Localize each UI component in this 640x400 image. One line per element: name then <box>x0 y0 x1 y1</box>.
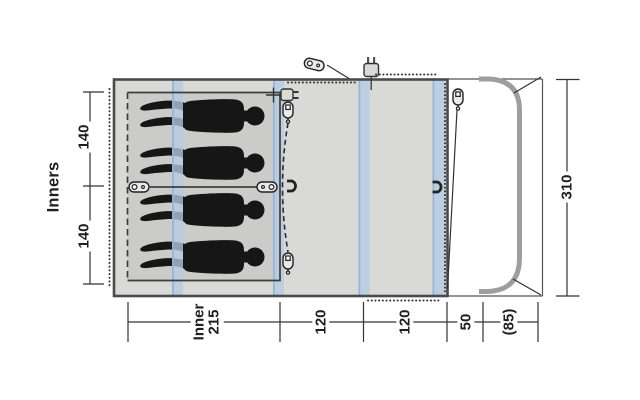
zipper-pull-icon <box>129 182 149 192</box>
roof-pole <box>433 80 446 296</box>
zipper-cord <box>327 65 349 79</box>
dim-label-living-left: 120 <box>312 306 329 337</box>
front-door-zipper-top <box>303 57 349 78</box>
roof-pole-edge <box>359 80 361 296</box>
inners-title-label: Inners <box>45 159 64 216</box>
dim-label-inner-depth-top: 140 <box>75 121 92 152</box>
dim-label-living-right: 120 <box>396 306 413 337</box>
power-plug-icon <box>281 89 293 101</box>
plug-prong <box>293 91 299 93</box>
zipper-pull-icon <box>453 89 463 110</box>
roof-pole-edge <box>433 80 435 296</box>
tent-floorplan: Inners 140 140 310 Inner 215 120 120 50 … <box>0 0 640 400</box>
zipper-pull-icon <box>257 182 277 192</box>
bottom-dimension-line <box>128 302 538 342</box>
floorplan-canvas <box>0 0 640 400</box>
dim-label-inner-width-line1: Inner <box>192 304 207 341</box>
zipper-track <box>448 110 458 289</box>
awning-boundary <box>448 79 543 296</box>
dim-label-total-depth: 310 <box>558 171 575 202</box>
awning-frame-pole <box>479 79 520 292</box>
plug-prong <box>293 97 299 99</box>
dim-label-awning: (85) <box>500 306 517 339</box>
dim-label-front: 50 <box>457 311 474 334</box>
dim-label-inner-depth-bottom: 140 <box>75 220 92 251</box>
guy-line <box>513 279 541 295</box>
zipper-pull-icon <box>303 57 325 72</box>
dim-label-inner-width: Inner 215 <box>191 301 224 344</box>
awning <box>448 77 543 296</box>
dim-label-inner-width-line2: 215 <box>207 304 222 341</box>
